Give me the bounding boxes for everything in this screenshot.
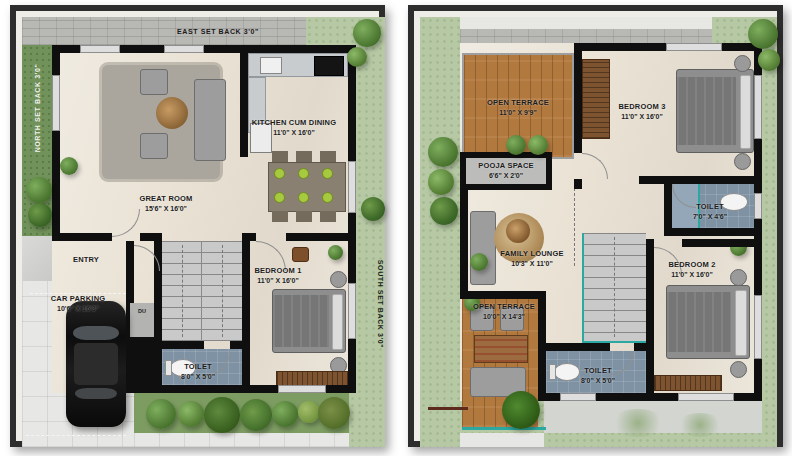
room-dims: 11'0" X 9'9" [487, 107, 549, 116]
terrace-plant [506, 135, 526, 155]
nightstand [730, 361, 747, 378]
wall [242, 241, 250, 393]
sofa [470, 211, 496, 285]
tree [758, 49, 780, 71]
wall [126, 303, 130, 337]
dining-chair [272, 151, 288, 162]
wall [126, 337, 154, 393]
nightstand [734, 153, 751, 170]
wall [126, 241, 134, 303]
room-label-kitchen: KITCHEN CUM DINING 11'0" X 16'0" [252, 118, 336, 137]
pillows [740, 75, 751, 149]
toilet-fixture [554, 363, 580, 381]
tree [748, 19, 778, 49]
blanket [273, 295, 329, 347]
room-name: TOILET [581, 366, 615, 376]
room-dims: 10'3" X 11'0" [500, 258, 563, 267]
garden-shrub [272, 401, 298, 427]
cistern [549, 364, 556, 380]
room-label-entry: ENTRY [73, 255, 99, 265]
room-dims: 7'0" X 4'6" [693, 211, 727, 220]
terrace-plant [528, 135, 548, 155]
dining-chair [296, 151, 312, 162]
room-name: BEDROOM 2 [668, 260, 715, 270]
dining-chair [320, 151, 336, 162]
side-table [506, 219, 530, 243]
nightstand [330, 271, 347, 288]
plate [322, 192, 333, 203]
wardrobe [582, 59, 610, 139]
duct-label: DU [138, 308, 146, 314]
stair-walkline [614, 237, 615, 337]
shrub [26, 177, 52, 203]
bed [666, 285, 750, 359]
window [348, 283, 356, 339]
bed [272, 289, 346, 353]
pillows [735, 290, 747, 355]
wall [634, 343, 646, 351]
wall [574, 179, 582, 189]
garden-shrub [298, 401, 320, 423]
room-name: GREAT ROOM [139, 194, 192, 204]
wall [639, 176, 754, 184]
blanket [667, 292, 731, 352]
room-label-family-lounge: FAMILY LOUNGE 10'3" X 11'0" [500, 249, 563, 268]
plate [274, 192, 285, 203]
wall [460, 190, 468, 291]
window [678, 393, 734, 401]
floor-plan-sheet: EAST SET BACK 3'0" NORTH SET BACK 3'0" S… [0, 0, 792, 456]
window [164, 45, 204, 53]
wall [538, 291, 546, 401]
room-name: ENTRY [73, 255, 99, 265]
car [66, 301, 126, 427]
partition-dashed [574, 183, 575, 266]
room-label-bedroom3: BEDROOM 3 11'0" X 16'0" [618, 102, 665, 121]
room-dims: 8'0" X 5'0" [581, 375, 615, 384]
palm [240, 399, 272, 431]
staircase [582, 233, 646, 343]
paving-strip [22, 17, 306, 45]
room-label-bedroom1: BEDROOM 1 11'0" X 16'0" [254, 266, 301, 285]
wall [240, 53, 248, 157]
room-label-car-parking: CAR PARKING 10'6" X 16'3" [51, 294, 106, 313]
room-name: CAR PARKING [51, 294, 106, 304]
setback-label-south: SOUTH SET BACK 3'0" [377, 260, 384, 348]
room-name: FAMILY LOUNGE [500, 249, 563, 259]
wall [348, 53, 356, 393]
room-label-open-terrace-top: OPEN TERRACE 11'0" X 9'9" [487, 98, 549, 117]
window [80, 45, 120, 53]
shrub [361, 197, 385, 221]
garden-shrub [146, 399, 176, 429]
window [278, 385, 326, 393]
walkway [134, 433, 349, 447]
room-label-toilet-upper: TOILET 7'0" X 4'6" [693, 202, 727, 221]
armchair [140, 69, 168, 95]
cistern [165, 360, 172, 376]
room-name: OPEN TERRACE [487, 98, 549, 108]
dresser [654, 375, 722, 391]
dining-chair [320, 211, 336, 222]
setback-label-east: EAST SET BACK 3'0" [177, 28, 259, 35]
indoor-plant [328, 245, 343, 260]
tree [430, 197, 458, 225]
window [666, 43, 722, 51]
palm [204, 397, 240, 433]
room-dims: 8'0" X 5'0" [181, 371, 215, 380]
stair-divider [201, 241, 202, 341]
shrub [28, 203, 52, 227]
palm [318, 397, 350, 429]
stair-walkline [182, 245, 183, 337]
room-name: OPEN TERRACE [473, 302, 535, 312]
bed [676, 69, 754, 153]
wall [682, 239, 762, 247]
wall [162, 341, 204, 349]
room-name: POOJA SPACE [478, 161, 534, 171]
room-dims: 11'0" X 16'0" [618, 111, 665, 120]
first-floor-plan: OPEN TERRACE 11'0" X 9'9" BEDROOM 3 11'0… [408, 5, 783, 447]
sofa [194, 79, 226, 161]
plate [274, 168, 285, 179]
shrub [353, 19, 381, 47]
garden-shrub [178, 401, 204, 427]
parapet-strip [460, 17, 712, 29]
room-dims: 11'0" X 16'0" [668, 269, 715, 278]
window [52, 75, 60, 131]
room-dims: 10'0" X 14'3" [473, 311, 535, 320]
room-dims: 11'0" X 16'0" [254, 275, 301, 284]
room-dims: 15'6" X 16'0" [139, 203, 192, 212]
window [348, 161, 356, 213]
shrub-soft [676, 413, 724, 437]
dining-chair [272, 211, 288, 222]
tree [428, 137, 458, 167]
tree [428, 169, 454, 195]
room-name: KITCHEN CUM DINING [252, 118, 336, 128]
room-label-pooja: POOJA SPACE 6'6" X 2'0" [478, 161, 534, 180]
coffee-table [156, 97, 188, 129]
room-name: TOILET [693, 202, 727, 212]
window [560, 393, 596, 401]
setback-label-north: NORTH SET BACK 3'0" [34, 64, 41, 153]
wall [664, 176, 672, 236]
walkway [460, 433, 544, 447]
room-name: BEDROOM 3 [618, 102, 665, 112]
room-dims: 10'6" X 16'3" [51, 303, 106, 312]
wall [230, 341, 242, 349]
window [754, 75, 762, 139]
rear-window [75, 388, 117, 399]
terrace-bush [502, 391, 540, 429]
wall [286, 233, 356, 241]
window [754, 295, 762, 359]
wall [546, 343, 610, 351]
wall [574, 51, 582, 153]
stair-walkline [222, 245, 223, 337]
plate [298, 192, 309, 203]
plate [298, 168, 309, 179]
car-roof [74, 343, 117, 386]
wall [242, 233, 256, 241]
wall [140, 233, 162, 241]
window [754, 193, 762, 219]
indoor-plant [60, 157, 78, 175]
room-label-bedroom2: BEDROOM 2 11'0" X 16'0" [668, 260, 715, 279]
room-dims: 6'6" X 2'0" [478, 170, 534, 179]
nightstand [730, 269, 747, 286]
room-label-toilet-gf: TOILET 8'0" X 5'0" [181, 362, 215, 381]
dresser [276, 371, 348, 386]
parapet-line [428, 407, 468, 410]
shrub-soft [610, 409, 666, 437]
room-label-great-room: GREAT ROOM 15'6" X 16'0" [139, 194, 192, 213]
armchair [140, 133, 168, 159]
outdoor-table [474, 335, 528, 363]
nightstand [734, 55, 751, 72]
pillows [332, 294, 343, 351]
plate [322, 168, 333, 179]
room-label-open-terrace-bottom: OPEN TERRACE 10'0" X 14'3" [473, 302, 535, 321]
sink [260, 57, 282, 74]
indoor-plant [470, 253, 488, 271]
room-name: BEDROOM 1 [254, 266, 301, 276]
windshield [73, 326, 119, 340]
room-name: TOILET [181, 362, 215, 372]
dining-chair [296, 211, 312, 222]
wall [460, 291, 546, 299]
room-dims: 11'0" X 16'0" [252, 127, 336, 136]
stove [314, 56, 344, 76]
terrace-railing [462, 427, 546, 430]
parking-marking [26, 435, 126, 436]
staircase [162, 241, 242, 341]
wall [646, 239, 654, 401]
shrub [347, 47, 367, 67]
room-label-toilet-lower: TOILET 8'0" X 5'0" [581, 366, 615, 385]
wall [52, 233, 112, 241]
ground-floor-plan: EAST SET BACK 3'0" NORTH SET BACK 3'0" S… [10, 5, 385, 447]
blanket [677, 77, 736, 146]
wall [664, 228, 762, 236]
ottoman [292, 247, 309, 262]
